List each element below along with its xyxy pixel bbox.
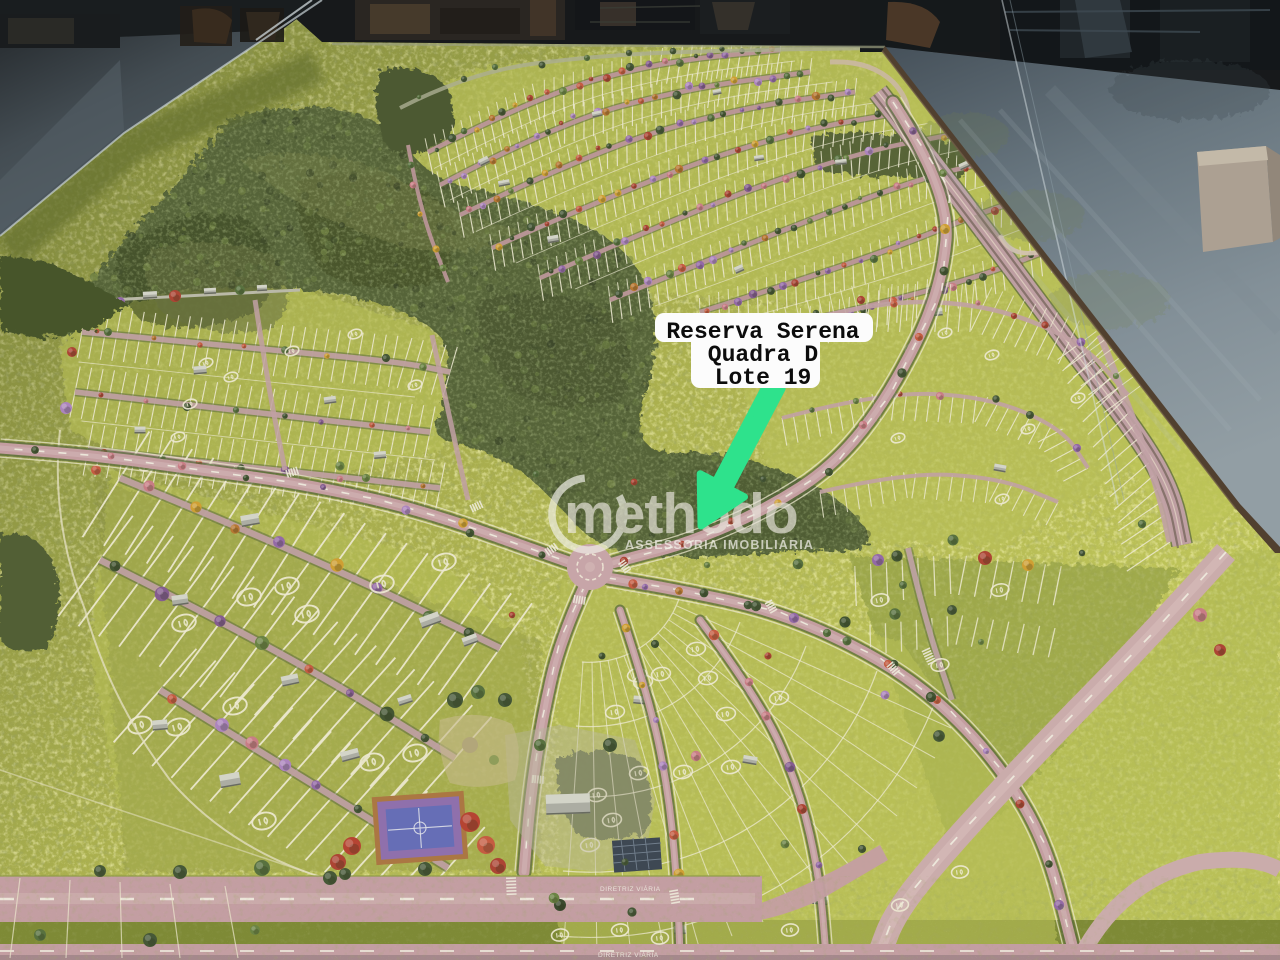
svg-text:methodo: methodo (564, 482, 798, 546)
svg-text:ASSESSORIA IMOBILIÁRIA: ASSESSORIA IMOBILIÁRIA (625, 537, 814, 552)
svg-text:Lote 19: Lote 19 (715, 365, 812, 391)
